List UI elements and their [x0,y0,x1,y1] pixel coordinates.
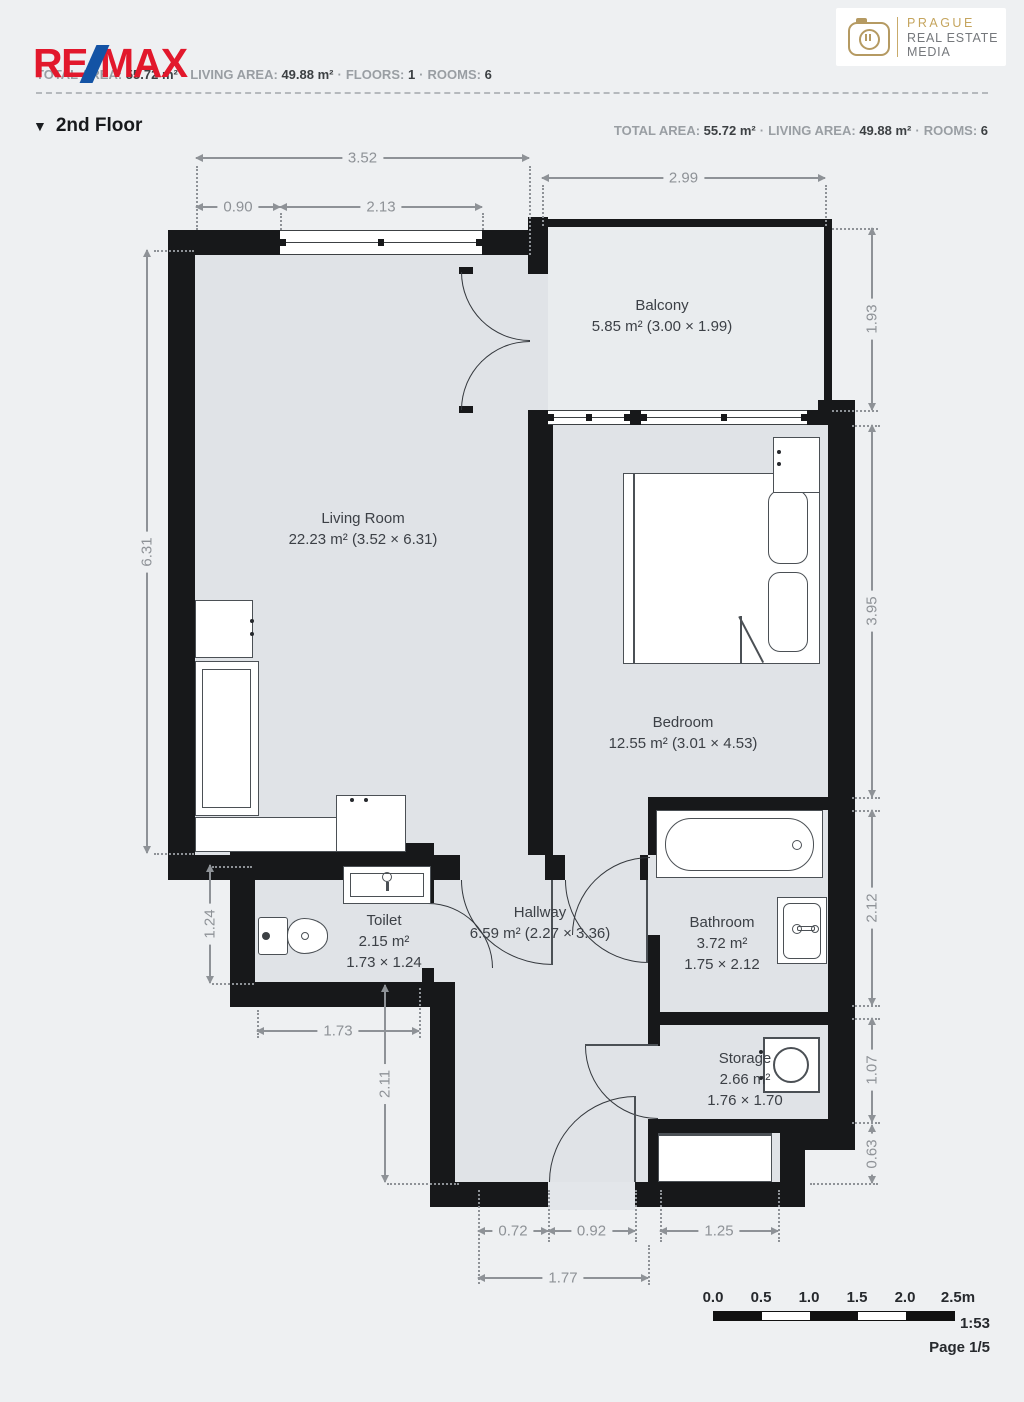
dimension-label: 0.72 [492,1223,533,1240]
room-label-toilet: Toilet2.15 m²1.73 × 1.24 [346,910,421,973]
stat-label: ROOMS: [924,123,981,138]
dimension-label: 2.13 [360,199,401,216]
stat-value: 6 [981,123,988,138]
room-label-line: Balcony [592,295,733,316]
scale-tick-label: 2.0 [895,1289,916,1306]
dimension-label: 1.25 [698,1223,739,1240]
room-label-storage: Storage2.66 m²1.76 × 1.70 [707,1048,782,1111]
bathtub-drain [792,840,802,850]
dimension-toilet-h: 1.24 [202,865,218,983]
room-label-line: Toilet [346,910,421,931]
wall [422,968,434,1007]
floor-title-text: 2nd Floor [56,115,143,137]
dimension-leader [825,185,827,226]
wall [430,982,455,1182]
room-label-line: 3.72 m² [684,933,759,954]
room-label-line: 2.15 m² [346,931,421,952]
stat-value: 55.72 m² [704,123,756,138]
room-label-line: 22.23 m² (3.52 × 6.31) [289,529,438,550]
room-label-hallway: Hallway6.59 m² (2.27 × 3.36) [470,902,611,944]
dimension-balc-w: 2.99 [542,170,825,186]
dimension-leader [196,166,198,230]
room-label-line: 1.73 × 1.24 [346,952,421,973]
dimension-label: 2.99 [663,170,704,187]
dimension-niche-w: 1.25 [660,1223,778,1239]
lens-detail [865,34,867,41]
wall [648,1012,855,1025]
room-label-bathroom: Bathroom3.72 m²1.75 × 2.12 [684,912,759,975]
floor-title: ▼ 2nd Floor [33,115,142,137]
dimension-label: 0.90 [217,199,258,216]
dimension-label: 1.77 [542,1270,583,1287]
room-label-line: 1.76 × 1.70 [707,1090,782,1111]
media-company-logo: PRAGUE REAL ESTATE MEDIA [836,8,1006,66]
dimension-w-left: 0.90 [196,199,280,215]
room-label-line: Storage [707,1048,782,1069]
scale-tick-label: 1.5 [847,1289,868,1306]
room-label-line: 12.55 m² (3.01 × 4.53) [609,733,758,754]
entry-threshold [548,1182,635,1210]
stat-separator: · [911,123,923,138]
room-label-line: Living Room [289,508,438,529]
dimension-hall-h: 2.11 [377,985,393,1182]
logo-divider [897,17,898,57]
kitchen-tall-cabinet-inner [202,669,251,808]
scale-tick-label: 1.0 [799,1289,820,1306]
dimension-leader [542,185,544,226]
wall [168,230,195,880]
window [641,410,807,425]
camera-icon-flash [856,18,867,23]
wall [545,855,565,880]
dimension-bed-h: 3.95 [864,425,880,797]
scale-bar-segment [858,1312,906,1320]
faucet-icon [811,925,819,933]
dimension-leader [154,250,194,252]
wc-flush-button [262,932,270,940]
stat-label: ROOMS: [428,67,485,82]
dimension-leader [154,853,194,855]
door-panel [634,1096,636,1182]
dimension-ent-total: 1.77 [478,1270,648,1286]
room-label-bedroom: Bedroom12.55 m² (3.01 × 4.53) [609,712,758,754]
dimension-w-window: 2.13 [280,199,482,215]
scale-bar-segment [714,1312,762,1320]
floor-plan-drawing: 3.520.902.132.991.936.313.952.121.070.63… [0,0,1024,1402]
detail-dot [250,632,254,636]
wall [528,425,553,855]
dimension-label: 1.07 [862,1049,883,1090]
wall [430,1182,548,1207]
stat-label: TOTAL AREA: [614,123,704,138]
dimension-label: 0.63 [862,1133,883,1174]
dimension-label: 3.95 [862,590,883,631]
room-label-line: 6.59 m² (2.27 × 3.36) [470,923,611,944]
wall [648,935,660,1012]
dimension-leader [212,983,254,985]
remax-logo-re: RE [33,40,87,87]
dimension-toilet-w: 1.73 [257,1023,419,1039]
room-label-balcony: Balcony5.85 m² (3.00 × 1.99) [592,295,733,337]
detail-dot [777,462,781,466]
wall [824,219,832,410]
dimension-label: 0.92 [571,1223,612,1240]
window [280,230,482,255]
kitchen-counter [195,817,341,852]
stat-label: LIVING AREA: [190,67,281,82]
window [548,410,630,425]
detail-dot [250,619,254,623]
wall [828,425,855,1012]
dimension-bath-h: 2.12 [864,810,880,1005]
scale-tick-label: 0.0 [703,1289,724,1306]
pillow [768,572,808,652]
dimension-label: 1.73 [317,1023,358,1040]
dimension-niche-h: 0.63 [864,1125,880,1183]
faucet-icon [792,924,802,934]
dimension-lr-h: 6.31 [139,250,155,853]
wall [648,1025,660,1046]
area-stats-line-2: TOTAL AREA: 55.72 m²·LIVING AREA: 49.88 … [614,123,988,138]
stat-separator: · [756,123,768,138]
scale-ratio: 1:53 [960,1315,990,1332]
remax-logo: RE MAX [33,40,187,87]
stat-separator: · [333,67,345,82]
dimension-leader [529,166,531,255]
pillow [768,490,808,564]
stat-value: 6 [485,67,492,82]
room-label-line: 5.85 m² (3.00 × 1.99) [592,316,733,337]
dimension-stor-h: 1.07 [864,1018,880,1122]
wall [648,797,828,810]
media-logo-line2: REAL ESTATE [907,31,998,46]
triangle-down-icon: ▼ [33,118,47,134]
scale-tick-label: 2.5m [941,1289,975,1306]
dimension-ent-l: 0.72 [478,1223,548,1239]
lens-detail [869,34,871,41]
scale-tick-label: 0.5 [751,1289,772,1306]
room-label-living: Living Room22.23 m² (3.52 × 6.31) [289,508,438,550]
faucet-stem [386,882,389,891]
dimension-label: 2.12 [862,887,883,928]
floor-plan-page: TOTAL AREA: 55.72 m²·LIVING AREA: 49.88 … [0,0,1024,1402]
stat-value: 49.88 m² [859,123,911,138]
dimension-label: 2.11 [375,1063,396,1103]
door-panel [646,880,648,963]
detail-dot [777,450,781,454]
page-number: Page 1/5 [929,1339,990,1356]
bed-headboard [633,473,635,664]
door-panel [585,1044,658,1046]
remax-logo-max: MAX [100,40,187,87]
dimension-label: 6.31 [137,531,158,572]
room-label-line: 2.66 m² [707,1069,782,1090]
dimension-label: 1.93 [862,298,883,339]
dimension-leader [280,213,282,230]
wc-drain [301,932,309,940]
stat-separator: · [415,67,427,82]
dimension-label: 1.24 [200,903,221,944]
dimension-balc-h: 1.93 [864,228,880,410]
faucet-icon [382,872,392,882]
dimension-label: 3.52 [342,150,383,167]
kitchen-wall-cabinet [195,600,253,658]
stat-label: FLOORS: [346,67,408,82]
outside [805,1150,828,1182]
room-label-line: Bedroom [609,712,758,733]
scale-bar [713,1311,955,1321]
room-label-line: Bathroom [684,912,759,933]
dimension-leader [387,1183,459,1185]
room-label-line: 1.75 × 2.12 [684,954,759,975]
scale-bar-segment [810,1312,858,1320]
scale-bar-segment [906,1312,954,1320]
room-label-line: Hallway [470,902,611,923]
entry-cabinet [658,1133,772,1182]
wall [780,1125,855,1150]
dimension-w-total: 3.52 [196,150,529,166]
media-logo-line3: MEDIA [907,45,998,60]
scale-bar-segment [762,1312,810,1320]
dimension-leader [212,866,252,868]
wall [828,1012,855,1125]
wall [780,1150,805,1182]
stat-value: 49.88 m² [281,67,333,82]
detail-dot [364,798,368,802]
wall [540,219,832,227]
dimension-ent-door: 0.92 [548,1223,635,1239]
media-logo-line1: PRAGUE [907,16,998,31]
kitchen-stove-unit [336,795,406,852]
detail-dot [350,798,354,802]
dimension-leader [482,213,484,230]
stat-label: LIVING AREA: [768,123,859,138]
